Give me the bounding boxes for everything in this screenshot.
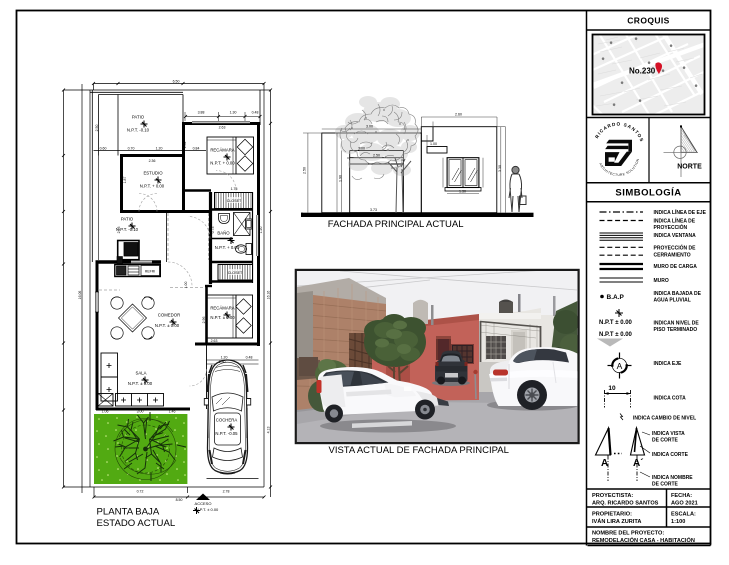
svg-text:10: 10 bbox=[608, 385, 616, 392]
svg-text:1.00: 1.00 bbox=[184, 282, 188, 289]
svg-text:A: A bbox=[617, 361, 623, 371]
svg-text:1.30: 1.30 bbox=[459, 190, 466, 194]
svg-text:RICARDO SANTOS: RICARDO SANTOS bbox=[594, 121, 644, 142]
svg-text:INDICA LÍNEA DE: INDICA LÍNEA DE bbox=[654, 217, 696, 225]
svg-text:1.20: 1.20 bbox=[259, 227, 263, 234]
svg-text:3.00: 3.00 bbox=[137, 410, 144, 414]
svg-text:N.P.T. -0.05: N.P.T. -0.05 bbox=[215, 431, 238, 436]
svg-text:DE CORTE: DE CORTE bbox=[652, 438, 679, 444]
svg-text:AGUA PLUVIAL: AGUA PLUVIAL bbox=[654, 298, 691, 304]
svg-text:INDICA BAJADA DE: INDICA BAJADA DE bbox=[654, 291, 702, 297]
svg-text:N.P.T ± 0.00: N.P.T ± 0.00 bbox=[599, 320, 633, 326]
svg-text:N.P.T. ± 0.00: N.P.T. ± 0.00 bbox=[196, 507, 219, 512]
svg-text:4.13: 4.13 bbox=[267, 427, 271, 434]
svg-text:2.13: 2.13 bbox=[117, 227, 121, 234]
svg-text:INDICA VENTANA: INDICA VENTANA bbox=[654, 233, 697, 239]
svg-text:3.00: 3.00 bbox=[366, 125, 373, 129]
svg-text:2.63: 2.63 bbox=[211, 339, 218, 343]
svg-text:PATIO: PATIO bbox=[132, 115, 145, 120]
svg-text:0.48: 0.48 bbox=[246, 356, 253, 360]
svg-text:1.52: 1.52 bbox=[183, 142, 187, 149]
svg-text:INDICA VISTA: INDICA VISTA bbox=[652, 431, 685, 437]
svg-text:MURO: MURO bbox=[654, 278, 669, 284]
svg-text:CLOSET: CLOSET bbox=[227, 199, 242, 203]
svg-text:COCHERA: COCHERA bbox=[216, 418, 238, 423]
svg-text:1.06: 1.06 bbox=[102, 410, 109, 414]
svg-text:B.A.P: B.A.P bbox=[607, 294, 625, 301]
svg-text:2.96: 2.96 bbox=[202, 317, 206, 324]
svg-text:2.50: 2.50 bbox=[95, 125, 99, 132]
svg-text:1.30: 1.30 bbox=[219, 360, 226, 364]
svg-text:N.P.T. + 0.00: N.P.T. + 0.00 bbox=[210, 161, 235, 166]
svg-text:N.P.T. ± 0.00: N.P.T. ± 0.00 bbox=[155, 323, 180, 328]
svg-text:FACHADA PRINCIPAL ACTUAL: FACHADA PRINCIPAL ACTUAL bbox=[328, 219, 464, 230]
svg-text:INDICAN NIVEL DE: INDICAN NIVEL DE bbox=[654, 321, 700, 327]
svg-text:CERRAMIENTO: CERRAMIENTO bbox=[654, 253, 691, 259]
svg-text:ESTADO ACTUAL: ESTADO ACTUAL bbox=[97, 518, 176, 529]
svg-text:REFRI: REFRI bbox=[145, 269, 155, 273]
svg-text:INDICA COTA: INDICA COTA bbox=[654, 396, 687, 402]
svg-text:3.30: 3.30 bbox=[498, 165, 502, 172]
svg-text:2.50: 2.50 bbox=[373, 154, 380, 158]
svg-text:1.00: 1.00 bbox=[430, 142, 437, 146]
svg-text:INDICA CORTE: INDICA CORTE bbox=[652, 452, 689, 458]
svg-text:0.48: 0.48 bbox=[252, 111, 259, 115]
svg-text:N.P.T. ± 0.00: N.P.T. ± 0.00 bbox=[128, 381, 153, 386]
svg-text:A: A bbox=[601, 458, 608, 469]
svg-text:0.84: 0.84 bbox=[193, 146, 200, 150]
svg-text:ESCALA:: ESCALA: bbox=[671, 512, 696, 518]
svg-text:INDICA NOMBRE: INDICA NOMBRE bbox=[652, 475, 693, 481]
svg-text:No.230: No.230 bbox=[629, 67, 656, 76]
svg-text:3.73: 3.73 bbox=[370, 208, 377, 212]
svg-text:DE CORTE: DE CORTE bbox=[652, 482, 679, 488]
svg-text:0.72: 0.72 bbox=[137, 490, 144, 494]
svg-text:A´: A´ bbox=[633, 458, 644, 469]
svg-text:VISTA ACTUAL DE FACHADA PRINCI: VISTA ACTUAL DE FACHADA PRINCIPAL bbox=[329, 445, 509, 456]
svg-text:CROQUIS: CROQUIS bbox=[627, 16, 669, 26]
svg-text:N.P.T ± 0.00: N.P.T ± 0.00 bbox=[599, 332, 633, 338]
svg-text:RECÁMARA: RECÁMARA bbox=[210, 306, 234, 311]
svg-text:SIMBOLOGÍA: SIMBOLOGÍA bbox=[615, 188, 681, 199]
svg-text:0.70: 0.70 bbox=[128, 146, 135, 150]
svg-text:ARQ. RICARDO SANTOS: ARQ. RICARDO SANTOS bbox=[592, 501, 659, 507]
svg-text:IVÁN LIRA ZURITA: IVÁN LIRA ZURITA bbox=[592, 518, 641, 525]
svg-text:N.P.T. + 0.00: N.P.T. + 0.00 bbox=[215, 245, 240, 250]
svg-text:2.60: 2.60 bbox=[455, 113, 462, 117]
svg-text:AGO 2021: AGO 2021 bbox=[671, 501, 698, 507]
svg-text:2.63: 2.63 bbox=[219, 126, 226, 130]
svg-text:16.16: 16.16 bbox=[267, 291, 271, 300]
svg-text:N.P.T. -0.10: N.P.T. -0.10 bbox=[127, 128, 150, 133]
svg-text:PROYECCIÓN DE: PROYECCIÓN DE bbox=[654, 244, 697, 252]
svg-text:NOMBRE DEL PROYECTO:: NOMBRE DEL PROYECTO: bbox=[592, 531, 664, 537]
svg-text:RECÁMARA: RECÁMARA bbox=[210, 148, 234, 153]
svg-text:PISO TERMINADO: PISO TERMINADO bbox=[654, 327, 698, 333]
svg-text:3.88: 3.88 bbox=[198, 111, 205, 115]
svg-text:ACCESO: ACCESO bbox=[195, 501, 212, 506]
svg-text:2.78: 2.78 bbox=[223, 490, 230, 494]
svg-text:PROYECTISTA:: PROYECTISTA: bbox=[592, 493, 633, 499]
svg-text:1.46: 1.46 bbox=[169, 410, 176, 414]
svg-text:1.00: 1.00 bbox=[358, 147, 365, 151]
svg-text:ESTUDIO: ESTUDIO bbox=[143, 171, 163, 176]
svg-text:BAÑO: BAÑO bbox=[217, 231, 230, 236]
svg-text:PROYECCIÓN: PROYECCIÓN bbox=[654, 223, 688, 231]
svg-text:1.75: 1.75 bbox=[231, 187, 238, 191]
svg-text:1.20: 1.20 bbox=[156, 146, 163, 150]
svg-text:1.87: 1.87 bbox=[123, 177, 127, 184]
svg-text:NORTE: NORTE bbox=[677, 164, 702, 171]
svg-text:N.P.T. ± 0.00: N.P.T. ± 0.00 bbox=[210, 315, 235, 320]
svg-text:1.90: 1.90 bbox=[339, 175, 343, 182]
svg-text:INDICA EJE: INDICA EJE bbox=[654, 361, 683, 367]
svg-text:FECHA:: FECHA: bbox=[671, 493, 692, 499]
svg-text:0.60: 0.60 bbox=[100, 146, 107, 150]
svg-text:CLOSET: CLOSET bbox=[228, 271, 243, 275]
svg-text:1.20: 1.20 bbox=[221, 356, 228, 360]
svg-text:INDICA CAMBIO DE NIVEL: INDICA CAMBIO DE NIVEL bbox=[633, 416, 696, 422]
svg-text:1:100: 1:100 bbox=[671, 519, 685, 525]
svg-text:8.50: 8.50 bbox=[176, 498, 183, 502]
svg-text:REMODELACIÓN CASA - HABITACIÓN: REMODELACIÓN CASA - HABITACIÓN bbox=[592, 536, 695, 544]
svg-text:SALA: SALA bbox=[136, 371, 147, 376]
svg-text:6.50: 6.50 bbox=[173, 79, 180, 83]
svg-text:PATIO: PATIO bbox=[121, 217, 134, 222]
svg-text:PLANTA BAJA: PLANTA BAJA bbox=[97, 507, 160, 518]
svg-text:INDICA LÍNEA DE EJE: INDICA LÍNEA DE EJE bbox=[654, 208, 707, 216]
svg-text:PROPIETARIO:: PROPIETARIO: bbox=[592, 512, 632, 518]
svg-text:0.73: 0.73 bbox=[211, 227, 215, 234]
svg-text:1.30: 1.30 bbox=[230, 111, 237, 115]
svg-text:MURO DE CARGA: MURO DE CARGA bbox=[654, 264, 698, 270]
svg-text:2.36: 2.36 bbox=[149, 159, 156, 163]
svg-text:COMEDOR: COMEDOR bbox=[158, 313, 180, 318]
svg-text:2.50: 2.50 bbox=[303, 167, 307, 174]
svg-text:16.06: 16.06 bbox=[78, 291, 82, 300]
svg-text:N.P.T. + 0.00: N.P.T. + 0.00 bbox=[140, 184, 165, 189]
